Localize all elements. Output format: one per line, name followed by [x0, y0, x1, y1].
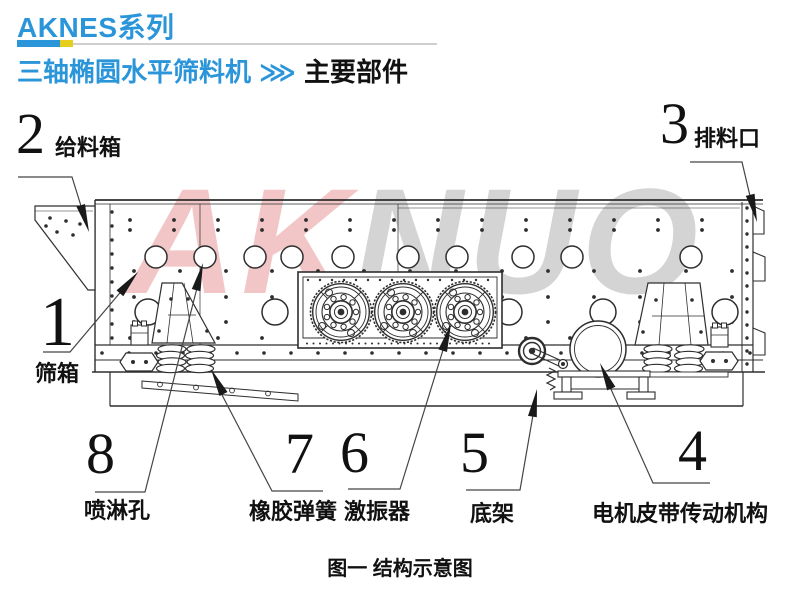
label-5-text-base-frame: 底架 [470, 496, 514, 528]
label-1-text-screen-box: 筛箱 [35, 356, 79, 388]
label-7-number-rubber-spring: 7 [285, 425, 314, 483]
rubber-springs [120, 345, 738, 373]
label-4-text-motor-belt-drive: 电机皮带传动机构 [592, 496, 768, 528]
label-5-number-base-frame: 5 [460, 424, 489, 482]
label-2-text-feed-box: 给料箱 [55, 130, 121, 162]
label-6-number-exciter: 6 [340, 424, 369, 482]
label-7-text-rubber-spring: 橡胶弹簧 [249, 494, 337, 526]
label-3-text-discharge-port: 排料口 [694, 121, 760, 153]
label-2-number-feed-box: 2 [16, 105, 45, 163]
label-8-text-spray-holes: 喷淋孔 [84, 493, 150, 525]
label-4-number-motor-belt-drive: 4 [678, 422, 707, 480]
exciter-assembly [298, 272, 502, 348]
label-8-number-spray-holes: 8 [86, 425, 115, 483]
figure-caption: 图一 结构示意图 [0, 552, 800, 581]
label-6-text-exciter: 激振器 [344, 494, 410, 526]
label-1-number-screen-box: 1 [40, 288, 75, 358]
label-3-number-discharge-port: 3 [660, 95, 689, 153]
discharge-port-tabs [753, 206, 765, 355]
page: AKNES系列 三轴椭圆水平筛料机⋙主要部件 AKNUO [0, 0, 800, 600]
